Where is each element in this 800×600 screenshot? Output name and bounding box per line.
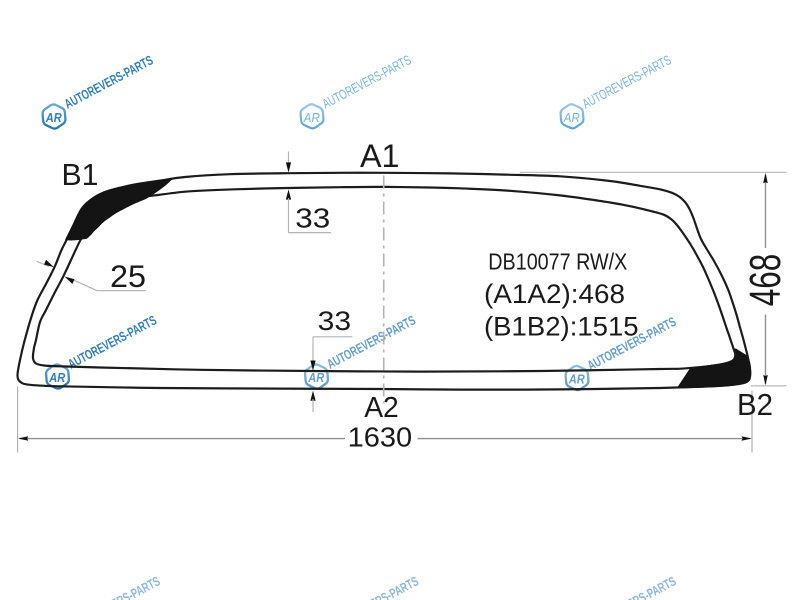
svg-text:1630: 1630 bbox=[348, 421, 413, 453]
svg-text:B1: B1 bbox=[62, 158, 99, 192]
svg-text:B2: B2 bbox=[737, 388, 773, 422]
svg-text:25: 25 bbox=[110, 258, 146, 294]
svg-text:DB10077 RW/X: DB10077 RW/X bbox=[488, 248, 627, 274]
svg-text:33: 33 bbox=[318, 306, 352, 336]
svg-text:A1: A1 bbox=[360, 138, 400, 174]
svg-text:(A1A2):468: (A1A2):468 bbox=[484, 279, 625, 309]
svg-text:(B1B2):1515: (B1B2):1515 bbox=[484, 311, 639, 341]
svg-text:468: 468 bbox=[741, 254, 790, 307]
svg-text:33: 33 bbox=[295, 202, 330, 233]
svg-text:A2: A2 bbox=[364, 391, 399, 423]
